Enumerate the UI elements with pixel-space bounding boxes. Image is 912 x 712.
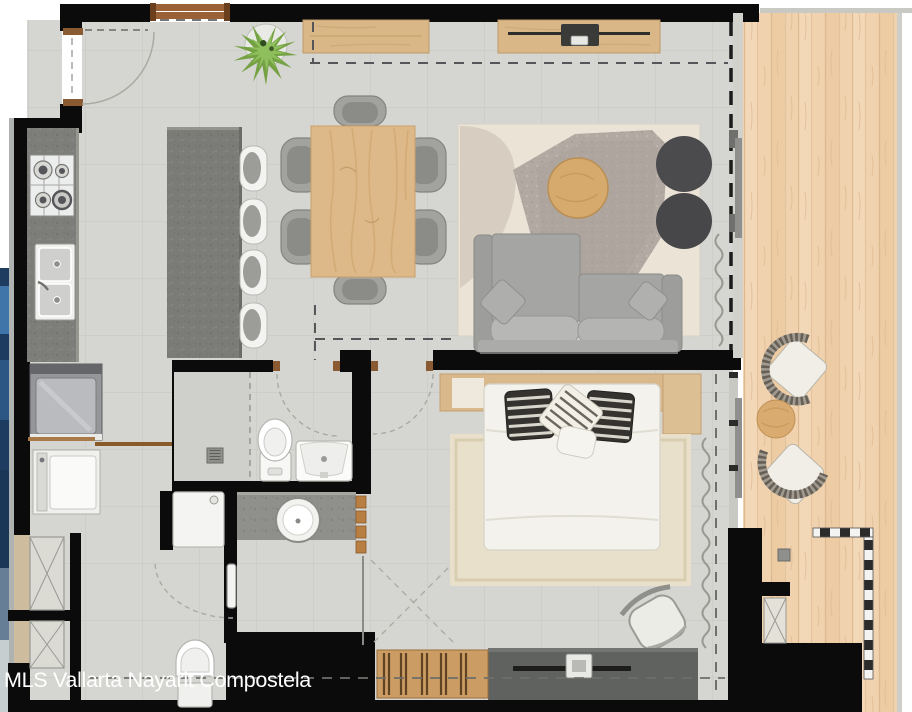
svg-text:MLS Vallarta Nayarit Compostel: MLS Vallarta Nayarit Compostela <box>4 668 311 692</box>
